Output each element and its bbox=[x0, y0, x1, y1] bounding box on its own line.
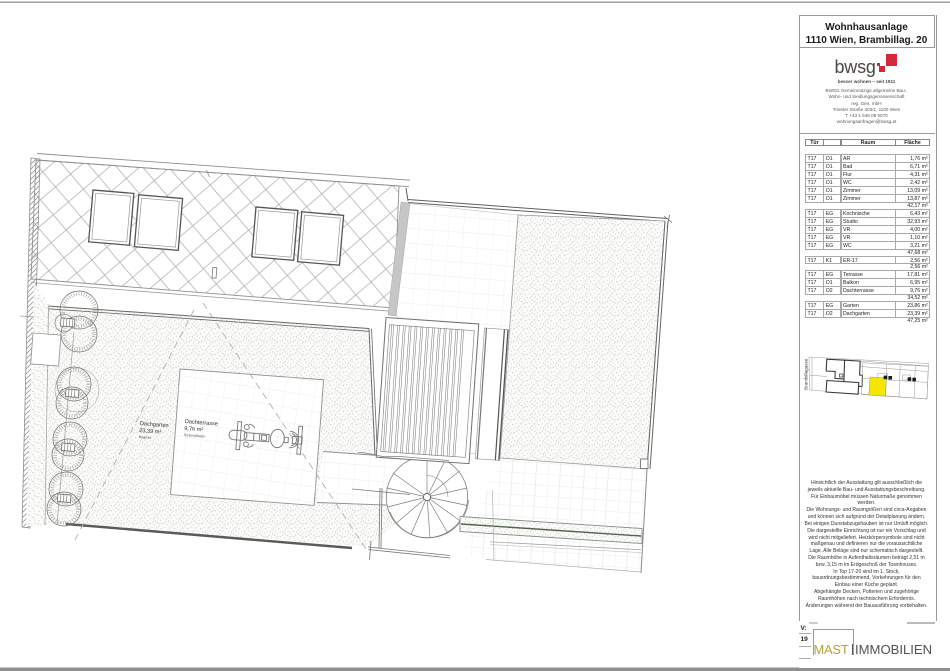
svg-text:Brambillagasse: Brambillagasse bbox=[803, 358, 808, 390]
